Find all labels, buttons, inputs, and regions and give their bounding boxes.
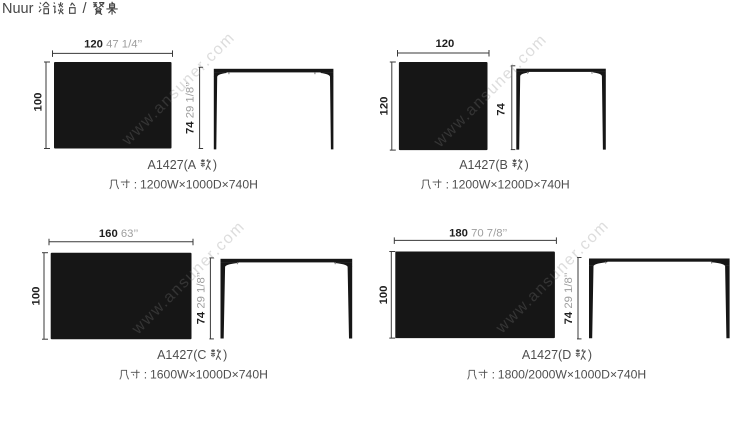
svg-text:A1427(D: A1427(D [522,348,571,362]
svg-text:): ) [588,348,592,362]
svg-text:1800/2000W×1000D×740H: 1800/2000W×1000D×740H [498,368,646,382]
svg-text:A1427(C: A1427(C [157,348,206,362]
svg-text::: : [446,177,449,191]
svg-text:): ) [223,348,227,362]
svg-text:100: 100 [31,287,43,306]
svg-text::: : [492,368,495,382]
svg-text::: : [144,368,147,382]
svg-text:1600W×1000D×740H: 1600W×1000D×740H [150,368,268,382]
svg-text:120: 120 [378,97,390,116]
svg-text:A1427(A: A1427(A [148,158,197,172]
svg-text:100: 100 [32,93,44,112]
svg-text:120: 120 [435,38,454,50]
svg-text:120 47 1/4’’: 120 47 1/4’’ [84,38,142,50]
svg-text:): ) [525,158,529,172]
svg-text:160 63’’: 160 63’’ [99,228,138,240]
svg-text:1200W×1000D×740H: 1200W×1000D×740H [140,177,258,191]
svg-text:1200W×1200D×740H: 1200W×1200D×740H [452,177,570,191]
svg-text:74 29 1/8’’: 74 29 1/8’’ [563,272,575,324]
svg-text:74: 74 [496,103,508,116]
svg-text:Nuur: Nuur [2,1,34,17]
svg-text:180 70 7/8’’: 180 70 7/8’’ [449,227,507,239]
svg-text:): ) [213,158,217,172]
svg-text:100: 100 [378,286,390,305]
svg-text::: : [134,177,137,191]
svg-text:A1427(B: A1427(B [459,158,508,172]
